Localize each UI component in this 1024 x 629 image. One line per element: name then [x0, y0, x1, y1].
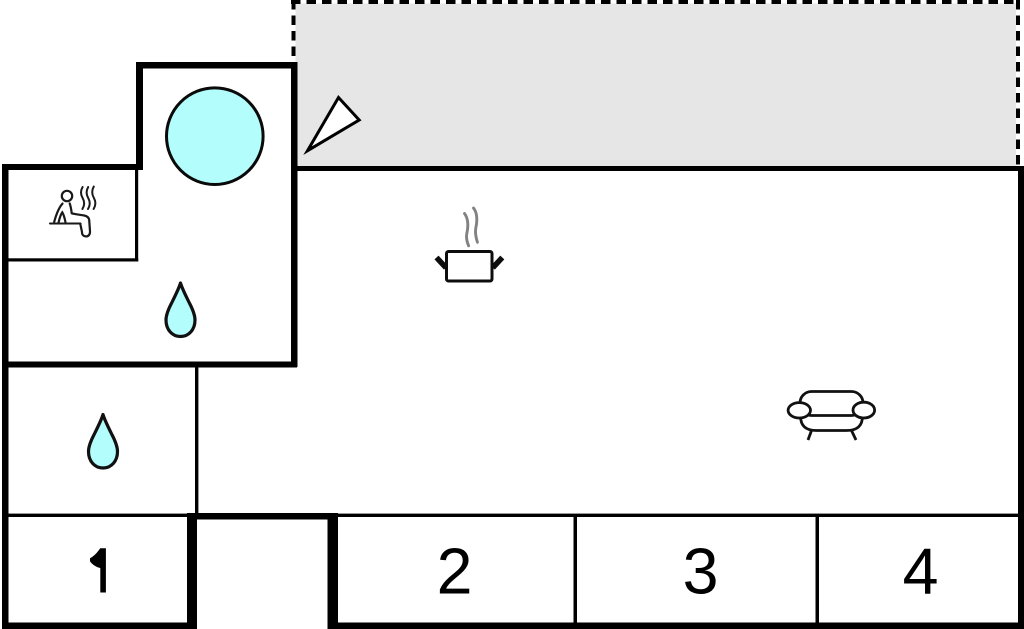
svg-text:4: 4: [903, 536, 939, 608]
svg-text:2: 2: [437, 536, 473, 608]
svg-text:3: 3: [683, 536, 719, 608]
